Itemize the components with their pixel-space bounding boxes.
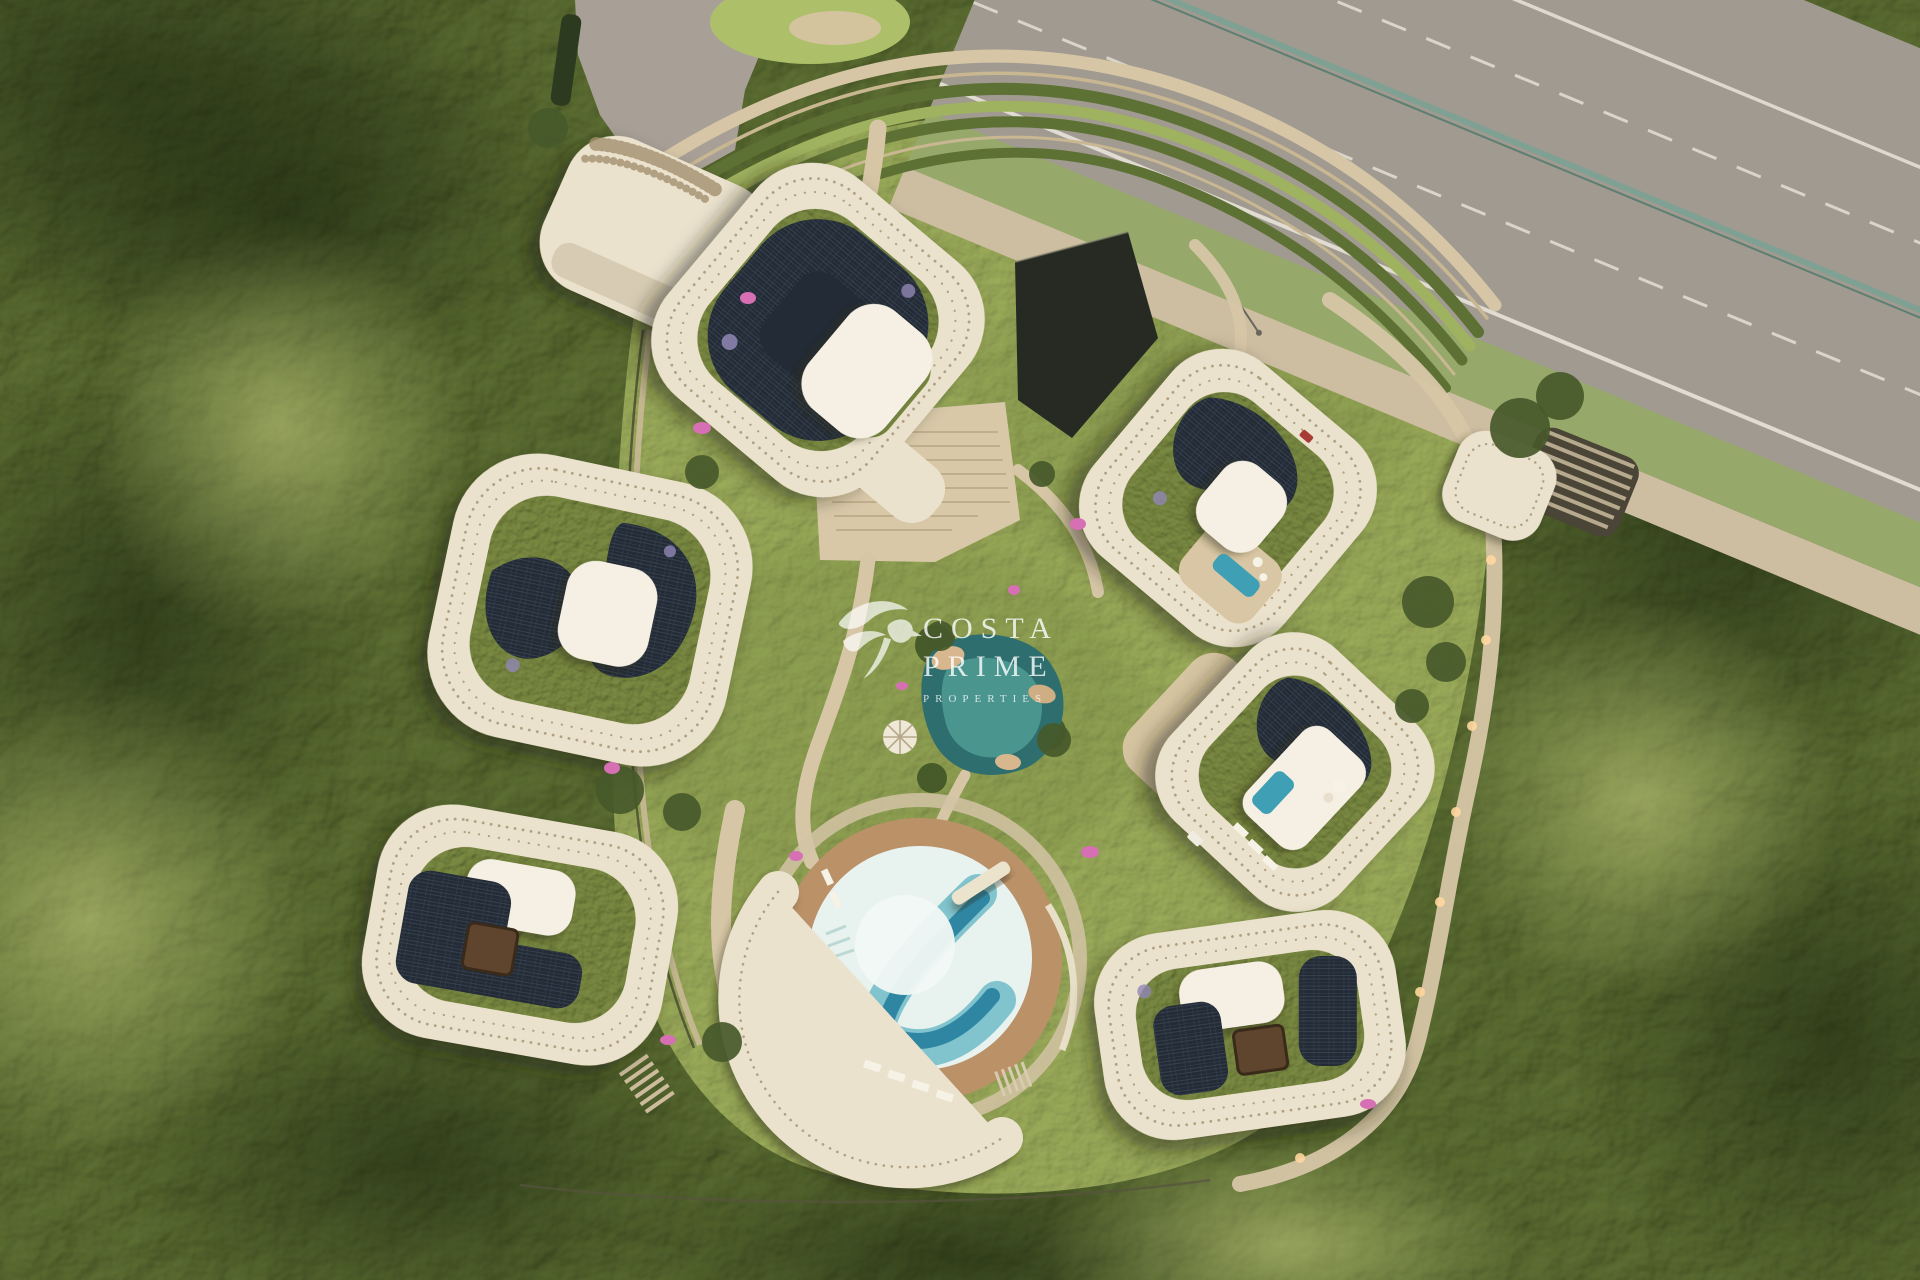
lamp-glow (1295, 1153, 1305, 1163)
flower-patch (604, 762, 620, 774)
tree-clump (685, 455, 719, 489)
tree-clump (663, 793, 701, 831)
flower-patch (740, 292, 756, 304)
pond-bush (917, 763, 947, 793)
spiral-staircase (883, 720, 917, 754)
sand-bunker (789, 11, 881, 45)
pool-shallow-center (855, 895, 955, 995)
spiral-stair-treads (883, 720, 917, 754)
flower-patch (1070, 518, 1086, 530)
tree-clump (1426, 642, 1466, 682)
flower-patch (896, 682, 908, 690)
solar-panel-grid (1299, 956, 1357, 1066)
solar-panel-grid (1151, 999, 1231, 1098)
lamp-glow (1435, 897, 1445, 907)
flower-patch (693, 422, 711, 434)
tree-clump (1395, 689, 1429, 723)
tree-clump (1029, 461, 1055, 487)
courtyard-opening (1233, 1025, 1289, 1076)
flower-patch (1081, 846, 1099, 858)
tree-clump (1037, 723, 1071, 757)
lamp-glow (1467, 721, 1477, 731)
tree-clump (1536, 372, 1584, 420)
tree-clump (1402, 576, 1454, 628)
forest-sunlit-patch (1440, 600, 1840, 1000)
lamp-glow (1486, 555, 1496, 565)
flower-patch (1360, 1099, 1376, 1109)
tree-clump (596, 766, 644, 814)
tree-clump (702, 1022, 742, 1062)
flower-patch (660, 1035, 676, 1045)
flower-patch (1008, 585, 1020, 595)
pond-water-light (942, 658, 1042, 758)
tree-clump (925, 621, 955, 651)
aerial-render: COSTA PRIME PROPERTIES (0, 0, 1920, 1280)
scene-canvas (0, 0, 1920, 1280)
flower-patch (789, 851, 803, 861)
courtyard-opening (461, 922, 518, 976)
lamp-glow (1481, 635, 1491, 645)
lamp-glow (1415, 987, 1425, 997)
lamp-glow (1451, 807, 1461, 817)
